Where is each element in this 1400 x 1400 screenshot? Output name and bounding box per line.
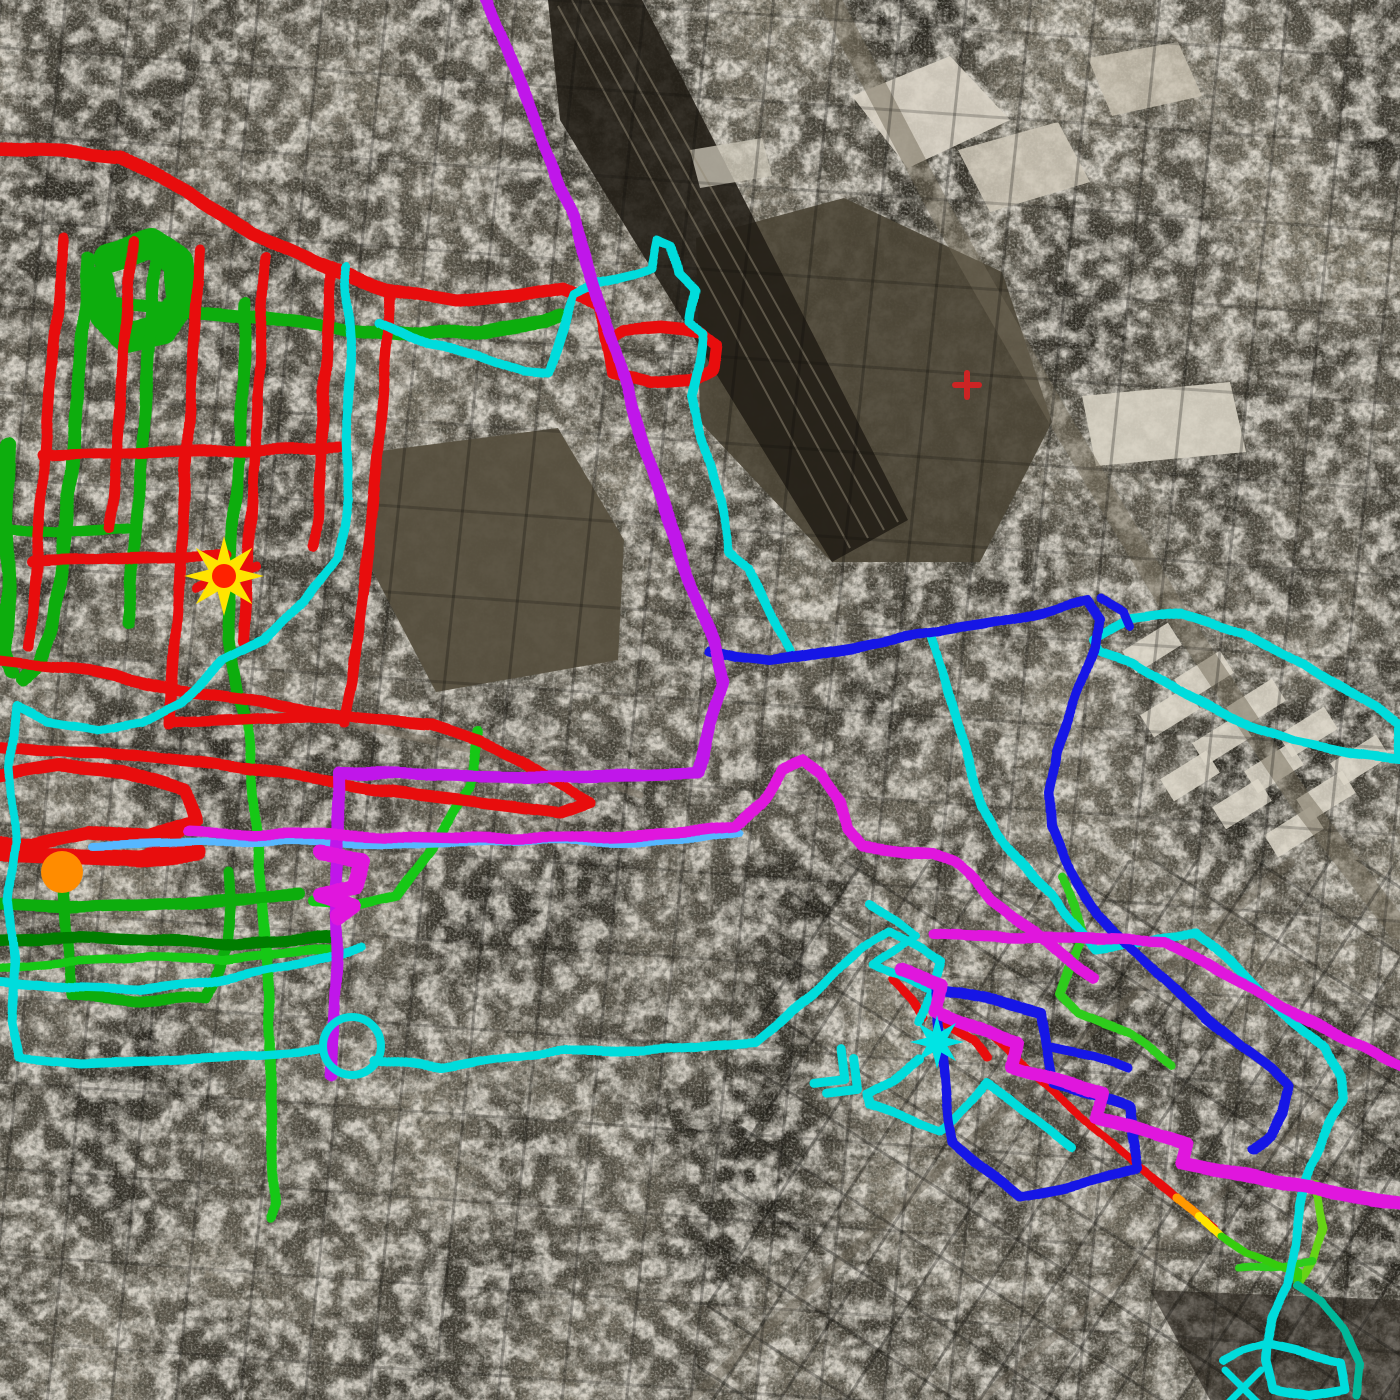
marker-yellow-burst-core: [212, 564, 236, 588]
gps-track-red-low-bar: [0, 853, 198, 859]
gps-track-green-left-edge: [5, 445, 12, 672]
gps-track-green-low-a: [0, 936, 332, 944]
region-white-building-4: [1082, 382, 1246, 466]
satellite-map-canvas: [0, 0, 1400, 1400]
marker-orange-blob: [41, 851, 83, 893]
satellite-gps-map: [0, 0, 1400, 1400]
gps-track-red-horizontal-2: [32, 556, 228, 562]
marker-cyan-star-blob-core: [929, 1034, 945, 1050]
